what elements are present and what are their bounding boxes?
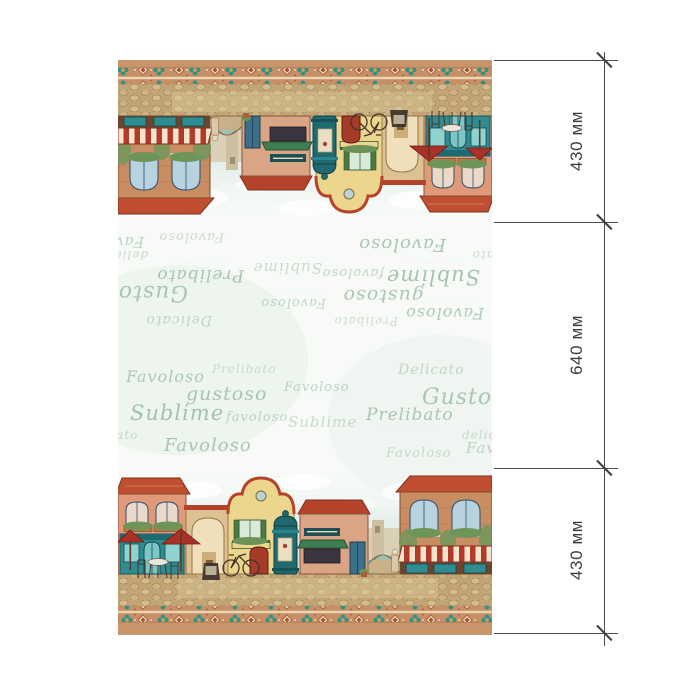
dimension-label-top: 430 мм: [567, 111, 587, 171]
product-image: Favoloso· · · · · · · · · ·PrelibatoDeli…: [0, 0, 700, 700]
dimension-label-bottom: 430 мм: [567, 520, 587, 580]
extension-line-top: [494, 60, 618, 61]
dimension-tick: [597, 460, 613, 476]
fabric-panel: Favoloso· · · · · · · · · ·PrelibatoDeli…: [118, 60, 492, 635]
dimension-label-middle: 640 мм: [567, 315, 587, 375]
extension-line-lower-mid: [494, 468, 618, 469]
dimension-tick: [597, 214, 613, 230]
dimension-tick: [597, 52, 613, 68]
dimension-tick: [597, 625, 613, 641]
extension-line-upper-mid: [494, 222, 618, 223]
fabric-artwork: [118, 60, 492, 635]
extension-line-bottom: [494, 633, 618, 634]
dimension-line: [604, 52, 605, 646]
